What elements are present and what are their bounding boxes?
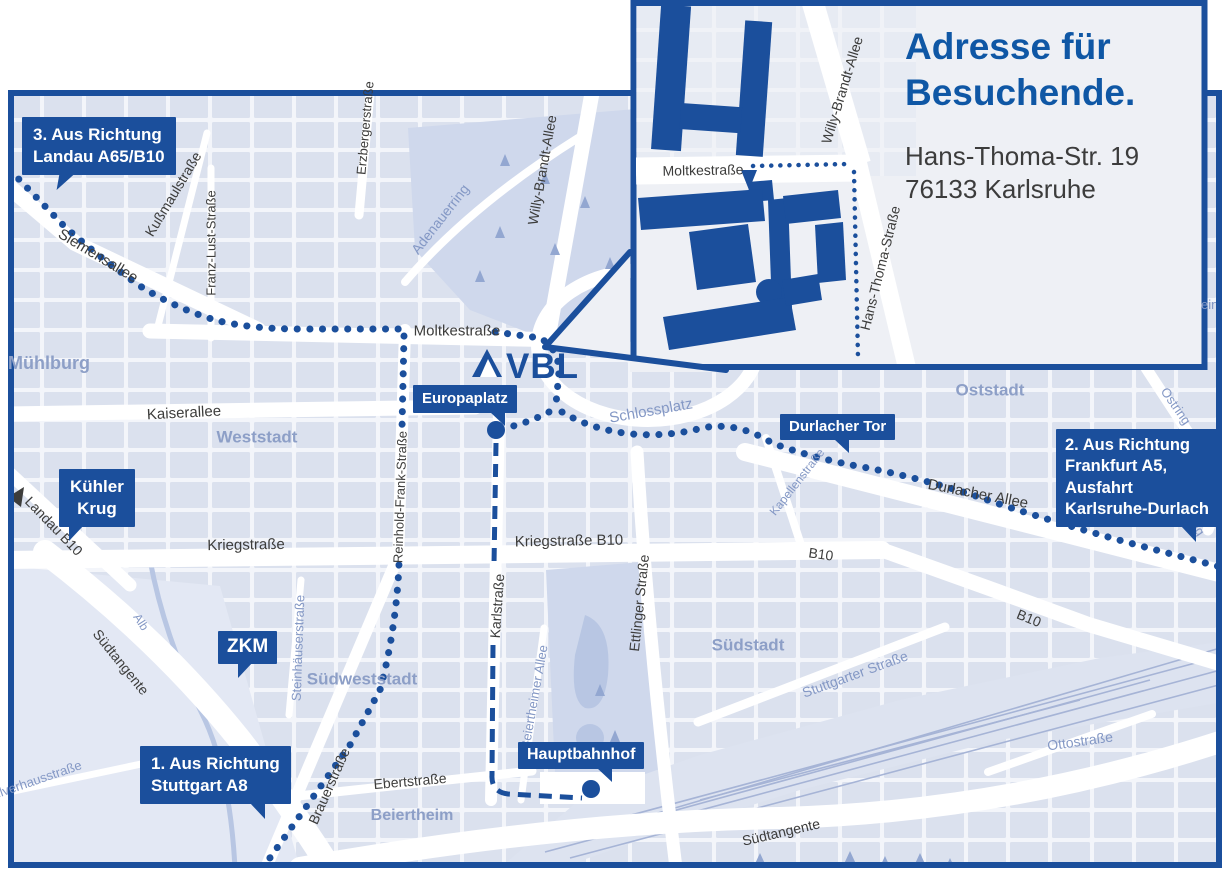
callout-route-2-line1: 2. Aus Richtung	[1065, 435, 1209, 456]
district-label-weststadt: Weststadt	[217, 429, 298, 446]
callout-durlacher-tor-label: Durlacher Tor	[789, 417, 886, 437]
callout-hauptbahnhof: Hauptbahnhof	[518, 742, 644, 769]
callout-route-3-line1: 3. Aus Richtung	[33, 124, 165, 146]
callout-route-1-line1: 1. Aus Richtung	[151, 753, 280, 775]
district-label-oststadt: Oststadt	[956, 382, 1025, 399]
vbl-directions-map: VBL	[0, 0, 1230, 874]
street-label-moltkestrasse: Moltkestraße	[414, 324, 501, 339]
callout-route-3-line2: Landau A65/B10	[33, 146, 165, 168]
district-label-muehlburg: Mühlburg	[8, 354, 90, 372]
callout-europaplatz-label: Europaplatz	[422, 389, 508, 409]
callout-route-2-line2: Frankfurt A5,	[1065, 456, 1209, 477]
street-label-steinhaeuserstrasse: Steinhäuserstraße	[290, 595, 307, 702]
district-label-suedweststadt: Südweststadt	[307, 671, 418, 688]
inset-title-line1: Adresse für	[905, 24, 1135, 70]
callout-durlacher-tor: Durlacher Tor	[780, 414, 895, 440]
callout-tail-icon	[834, 439, 849, 453]
street-label-edge-fragment: ein	[1201, 297, 1216, 312]
inset-address-line2: 76133 Karlsruhe	[905, 173, 1139, 206]
callout-tail-icon	[57, 174, 75, 190]
callout-tail-icon	[238, 662, 253, 678]
callout-tail-icon	[250, 803, 265, 819]
callout-kuehler-krug-line2: Krug	[70, 498, 124, 520]
callout-zkm-label: ZKM	[227, 635, 268, 660]
callout-hauptbahnhof-label: Hauptbahnhof	[527, 745, 635, 766]
callout-tail-icon	[69, 525, 84, 541]
street-label-franz-lust-strasse: Franz-Lust-Straße	[205, 190, 218, 295]
street-kriegstrasse	[6, 550, 882, 560]
callout-zkm: ZKM	[218, 631, 277, 664]
callout-tail-icon	[1181, 526, 1196, 542]
callout-europaplatz: Europaplatz	[413, 385, 517, 413]
callout-route-2-line4: Karlsruhe-Durlach	[1065, 499, 1209, 520]
inset-title: Adresse für Besuchende.	[905, 24, 1135, 116]
callout-route-3: 3. Aus Richtung Landau A65/B10	[22, 117, 176, 175]
callout-tail-icon	[490, 412, 505, 426]
street-label-b10-center: B10	[808, 545, 835, 562]
callout-route-1-line2: Stuttgart A8	[151, 775, 280, 797]
callout-kuehler-krug: Kühler Krug	[59, 469, 135, 527]
inset-address: Hans-Thoma-Str. 19 76133 Karlsruhe	[905, 140, 1139, 206]
hauptbahnhof-dot	[582, 780, 600, 798]
inset-street-label-moltkestrasse: Moltkestraße	[662, 162, 743, 177]
callout-route-2-line3: Ausfahrt	[1065, 478, 1209, 499]
district-label-beiertheim: Beiertheim	[371, 808, 454, 824]
callout-route-1: 1. Aus Richtung Stuttgart A8	[140, 746, 291, 804]
street-label-kriegstrasse: Kriegstraße	[207, 537, 285, 553]
callout-route-2: 2. Aus Richtung Frankfurt A5, Ausfahrt K…	[1056, 429, 1218, 527]
callout-kuehler-krug-line1: Kühler	[70, 476, 124, 498]
callout-tail-icon	[597, 768, 612, 782]
edge-fragment-clip: ein	[1201, 296, 1216, 314]
street-label-kriegstrasse-b10: Kriegstraße B10	[515, 533, 624, 550]
street-label-kaiserallee: Kaiserallee	[147, 404, 222, 423]
inset-address-line1: Hans-Thoma-Str. 19	[905, 140, 1139, 173]
district-label-suedstadt: Südstadt	[712, 637, 785, 654]
inset-title-line2: Besuchende.	[905, 70, 1135, 116]
